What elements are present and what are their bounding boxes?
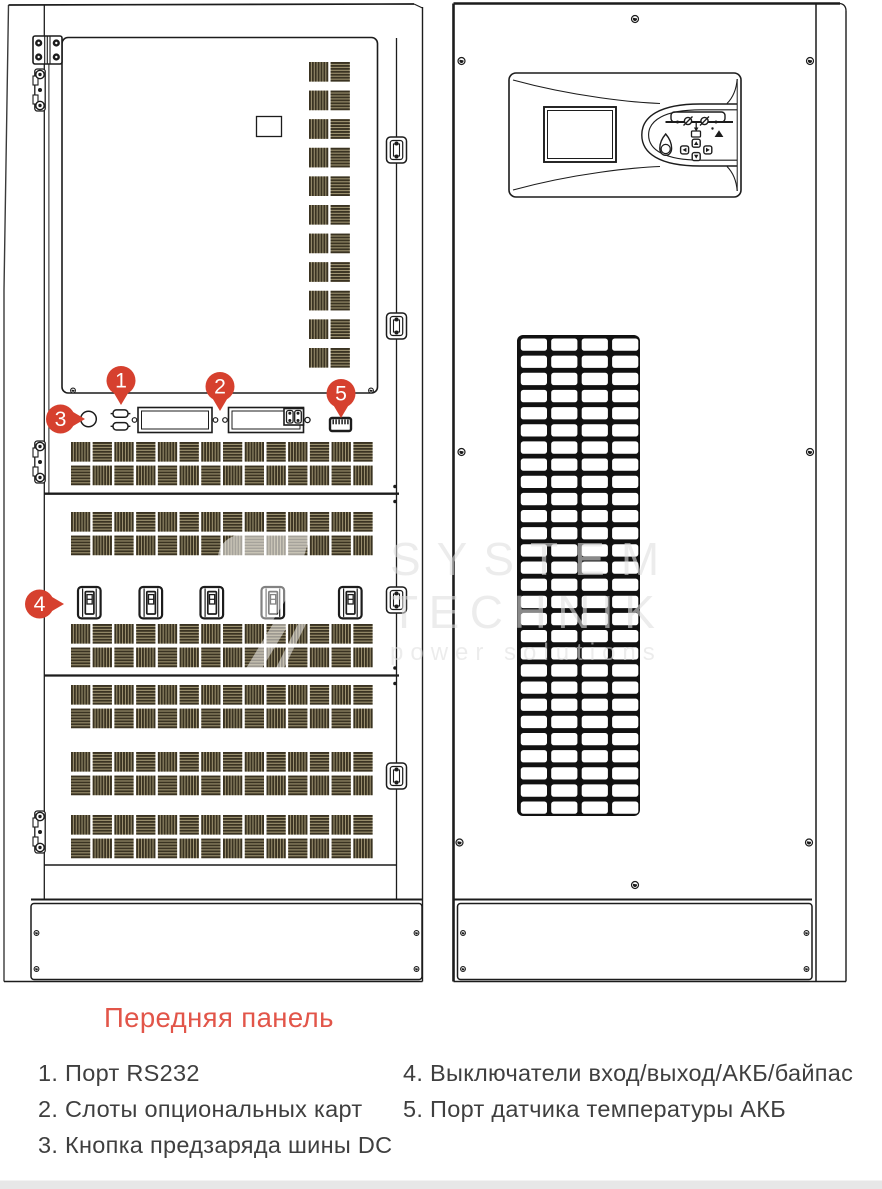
svg-text:SYSTEM: SYSTEM	[390, 533, 675, 585]
svg-text:3: 3	[55, 408, 67, 431]
svg-text:5. Порт датчика температуры АК: 5. Порт датчика температуры АКБ	[403, 1096, 786, 1122]
svg-text:TECHNIK: TECHNIK	[390, 586, 665, 638]
svg-text:2: 2	[214, 376, 226, 399]
svg-text:5: 5	[335, 383, 347, 406]
svg-text:4: 4	[34, 593, 46, 616]
svg-text:2. Слоты опциональных карт: 2. Слоты опциональных карт	[38, 1096, 362, 1122]
svg-text:power solutions: power solutions	[390, 639, 662, 666]
svg-text:4. Выключатели вход/выход/АКБ/: 4. Выключатели вход/выход/АКБ/байпас	[403, 1060, 853, 1086]
svg-text:3. Кнопка предзаряда шины DC: 3. Кнопка предзаряда шины DC	[38, 1132, 392, 1158]
svg-text:Передняя панель: Передняя панель	[104, 1002, 334, 1033]
svg-text:1. Порт RS232: 1. Порт RS232	[38, 1060, 200, 1086]
svg-text:1: 1	[115, 370, 127, 393]
